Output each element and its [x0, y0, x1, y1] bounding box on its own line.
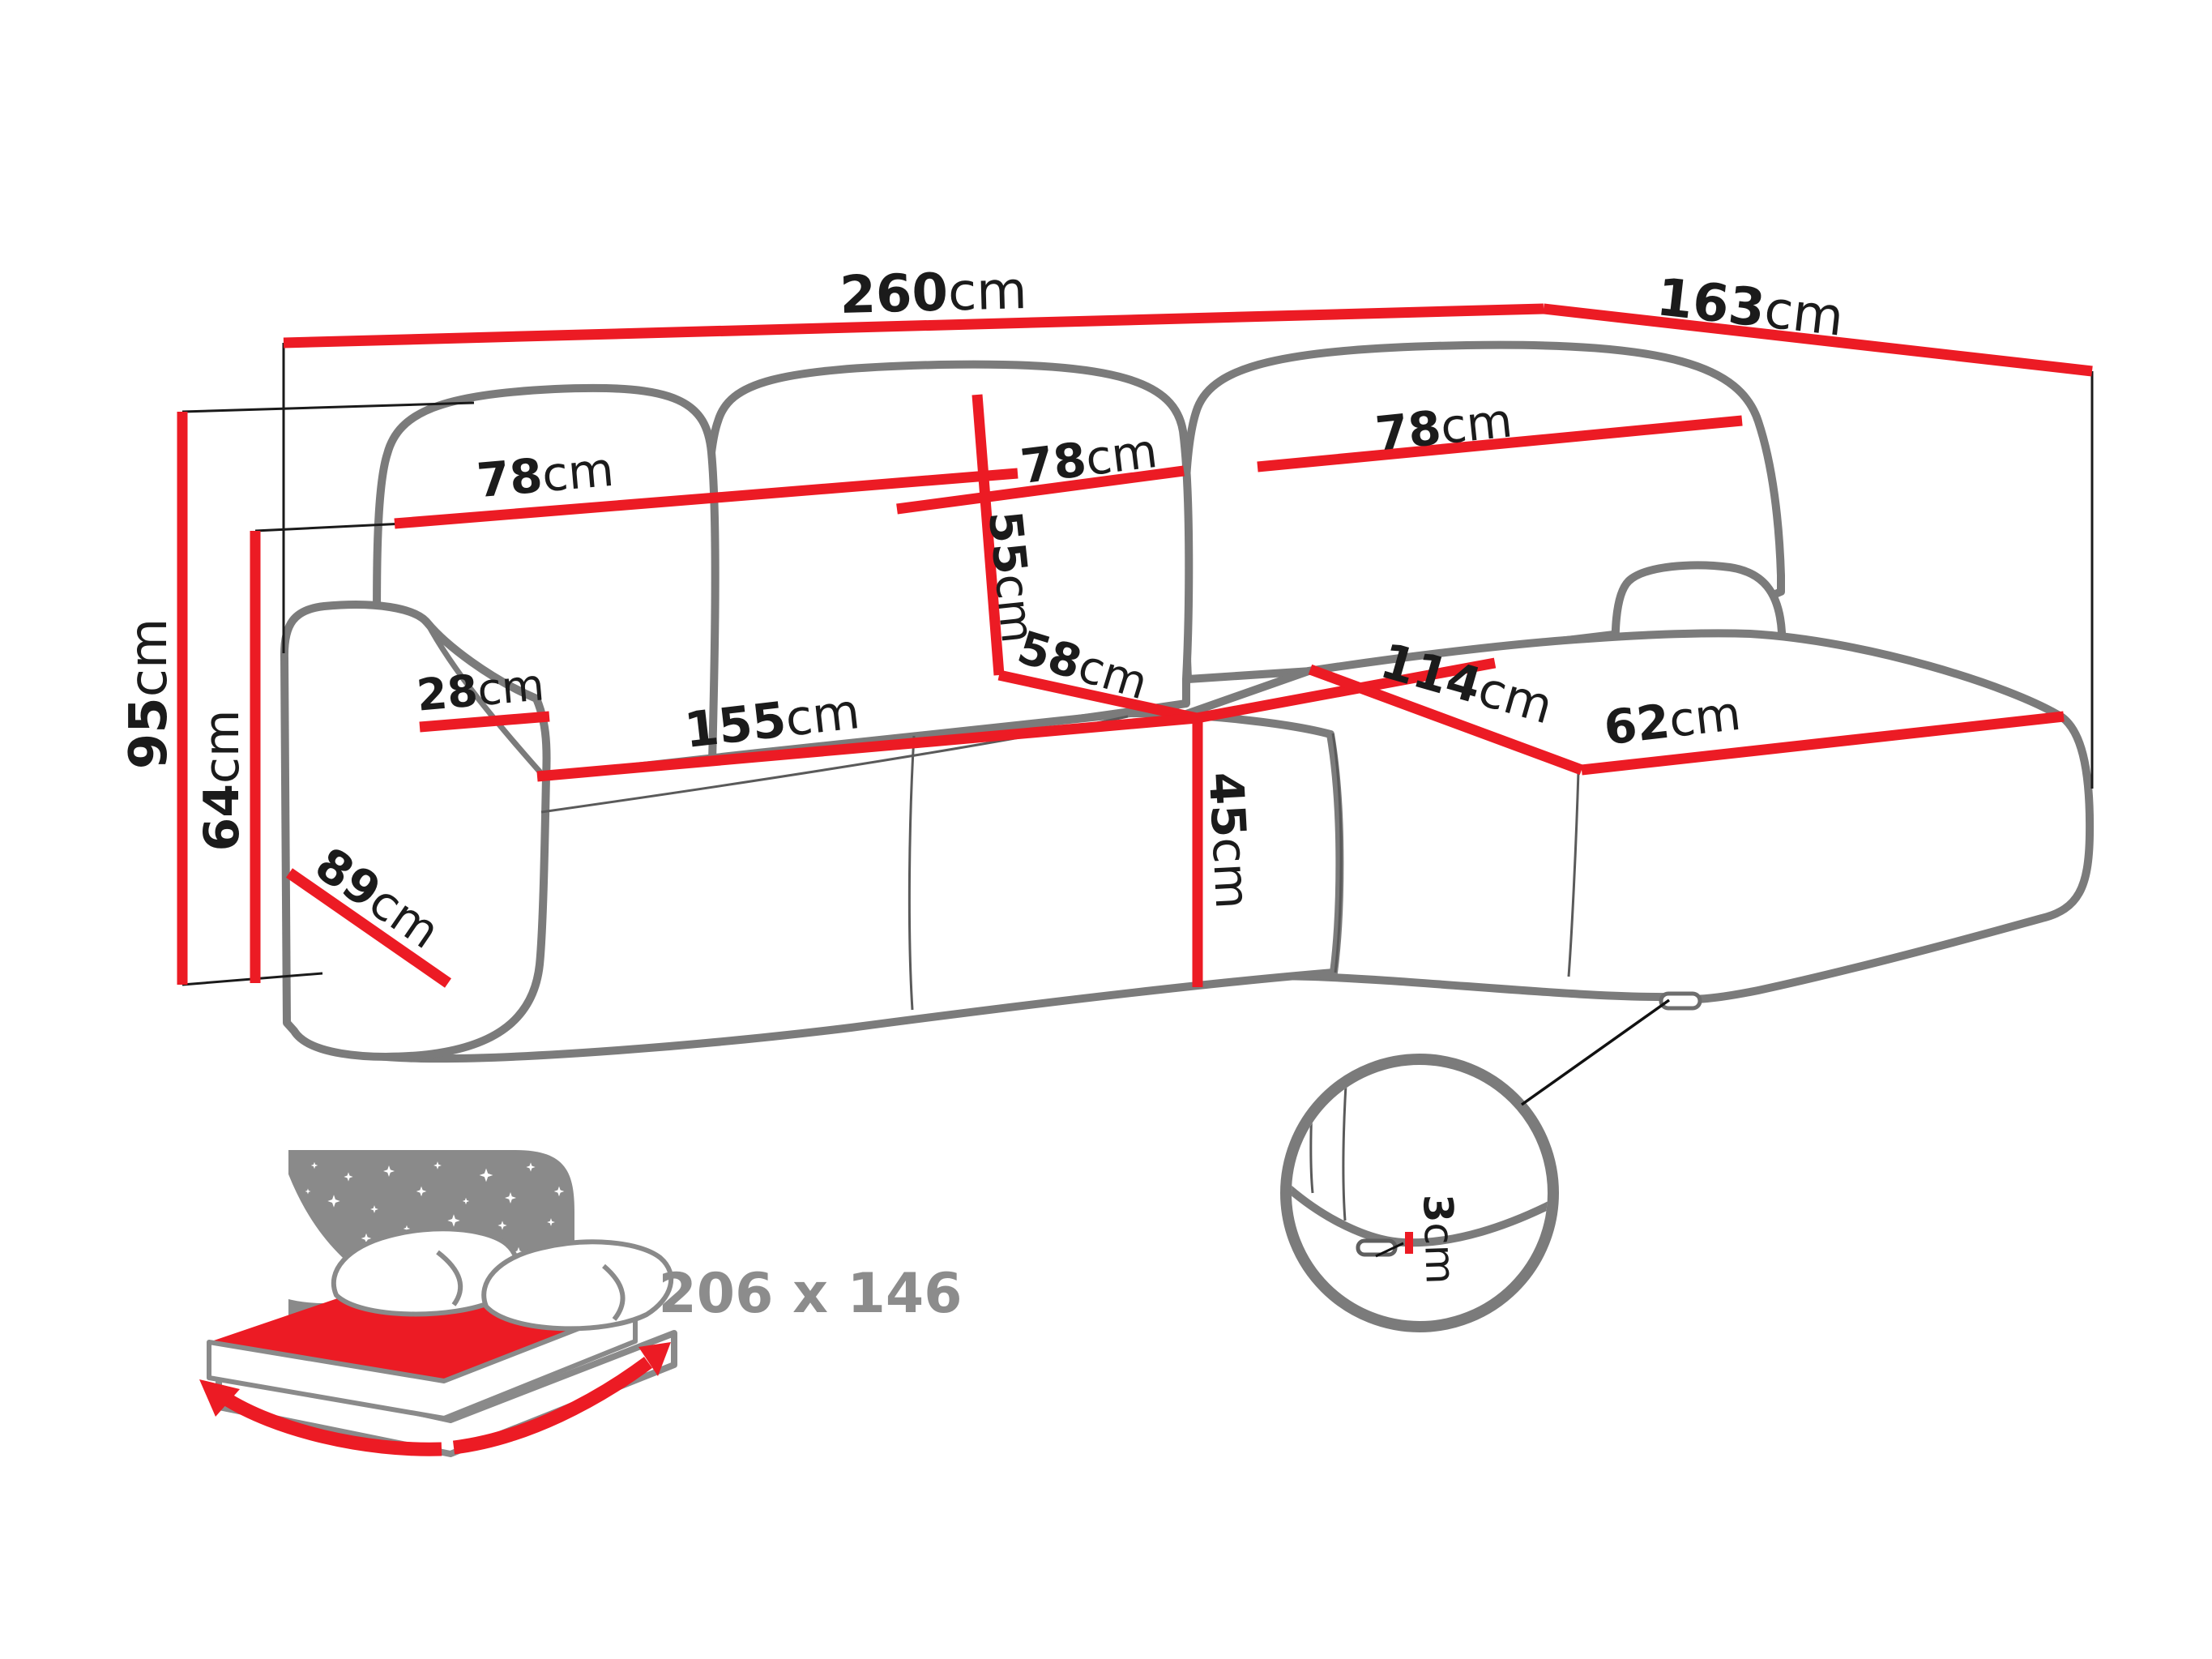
dim-armrest-width: 28cm: [415, 663, 546, 718]
magnified-leg: [1358, 1241, 1395, 1255]
dim-seat-height: 45cm: [1202, 771, 1257, 910]
dim-armrest-height: 64cm: [198, 710, 246, 852]
dim-total-height: 95cm: [123, 618, 175, 770]
diagram-canvas: [0, 0, 2212, 1659]
dim-back-cushion-left: 78cm: [475, 446, 616, 505]
dim-leg-height: 3cm: [1417, 1194, 1461, 1285]
leg-height-tick: [1405, 1232, 1413, 1254]
sleeping-area-label: 206 x 146: [658, 1267, 962, 1322]
dim-chaise-width: 62cm: [1602, 690, 1744, 752]
dim-back-cushion-right: 78cm: [1373, 396, 1514, 457]
dim-total-width: 260cm: [839, 265, 1028, 322]
bed-pillows: [334, 1229, 671, 1328]
sofa-dimension-diagram: 260cm 163cm 95cm 64cm 78cm 78cm 78cm 55c…: [0, 0, 2212, 1659]
magnifier-connector-line: [1522, 1000, 1669, 1105]
bed-icon: [199, 1147, 674, 1454]
leg-detail-magnifier: [1280, 1000, 1669, 1327]
